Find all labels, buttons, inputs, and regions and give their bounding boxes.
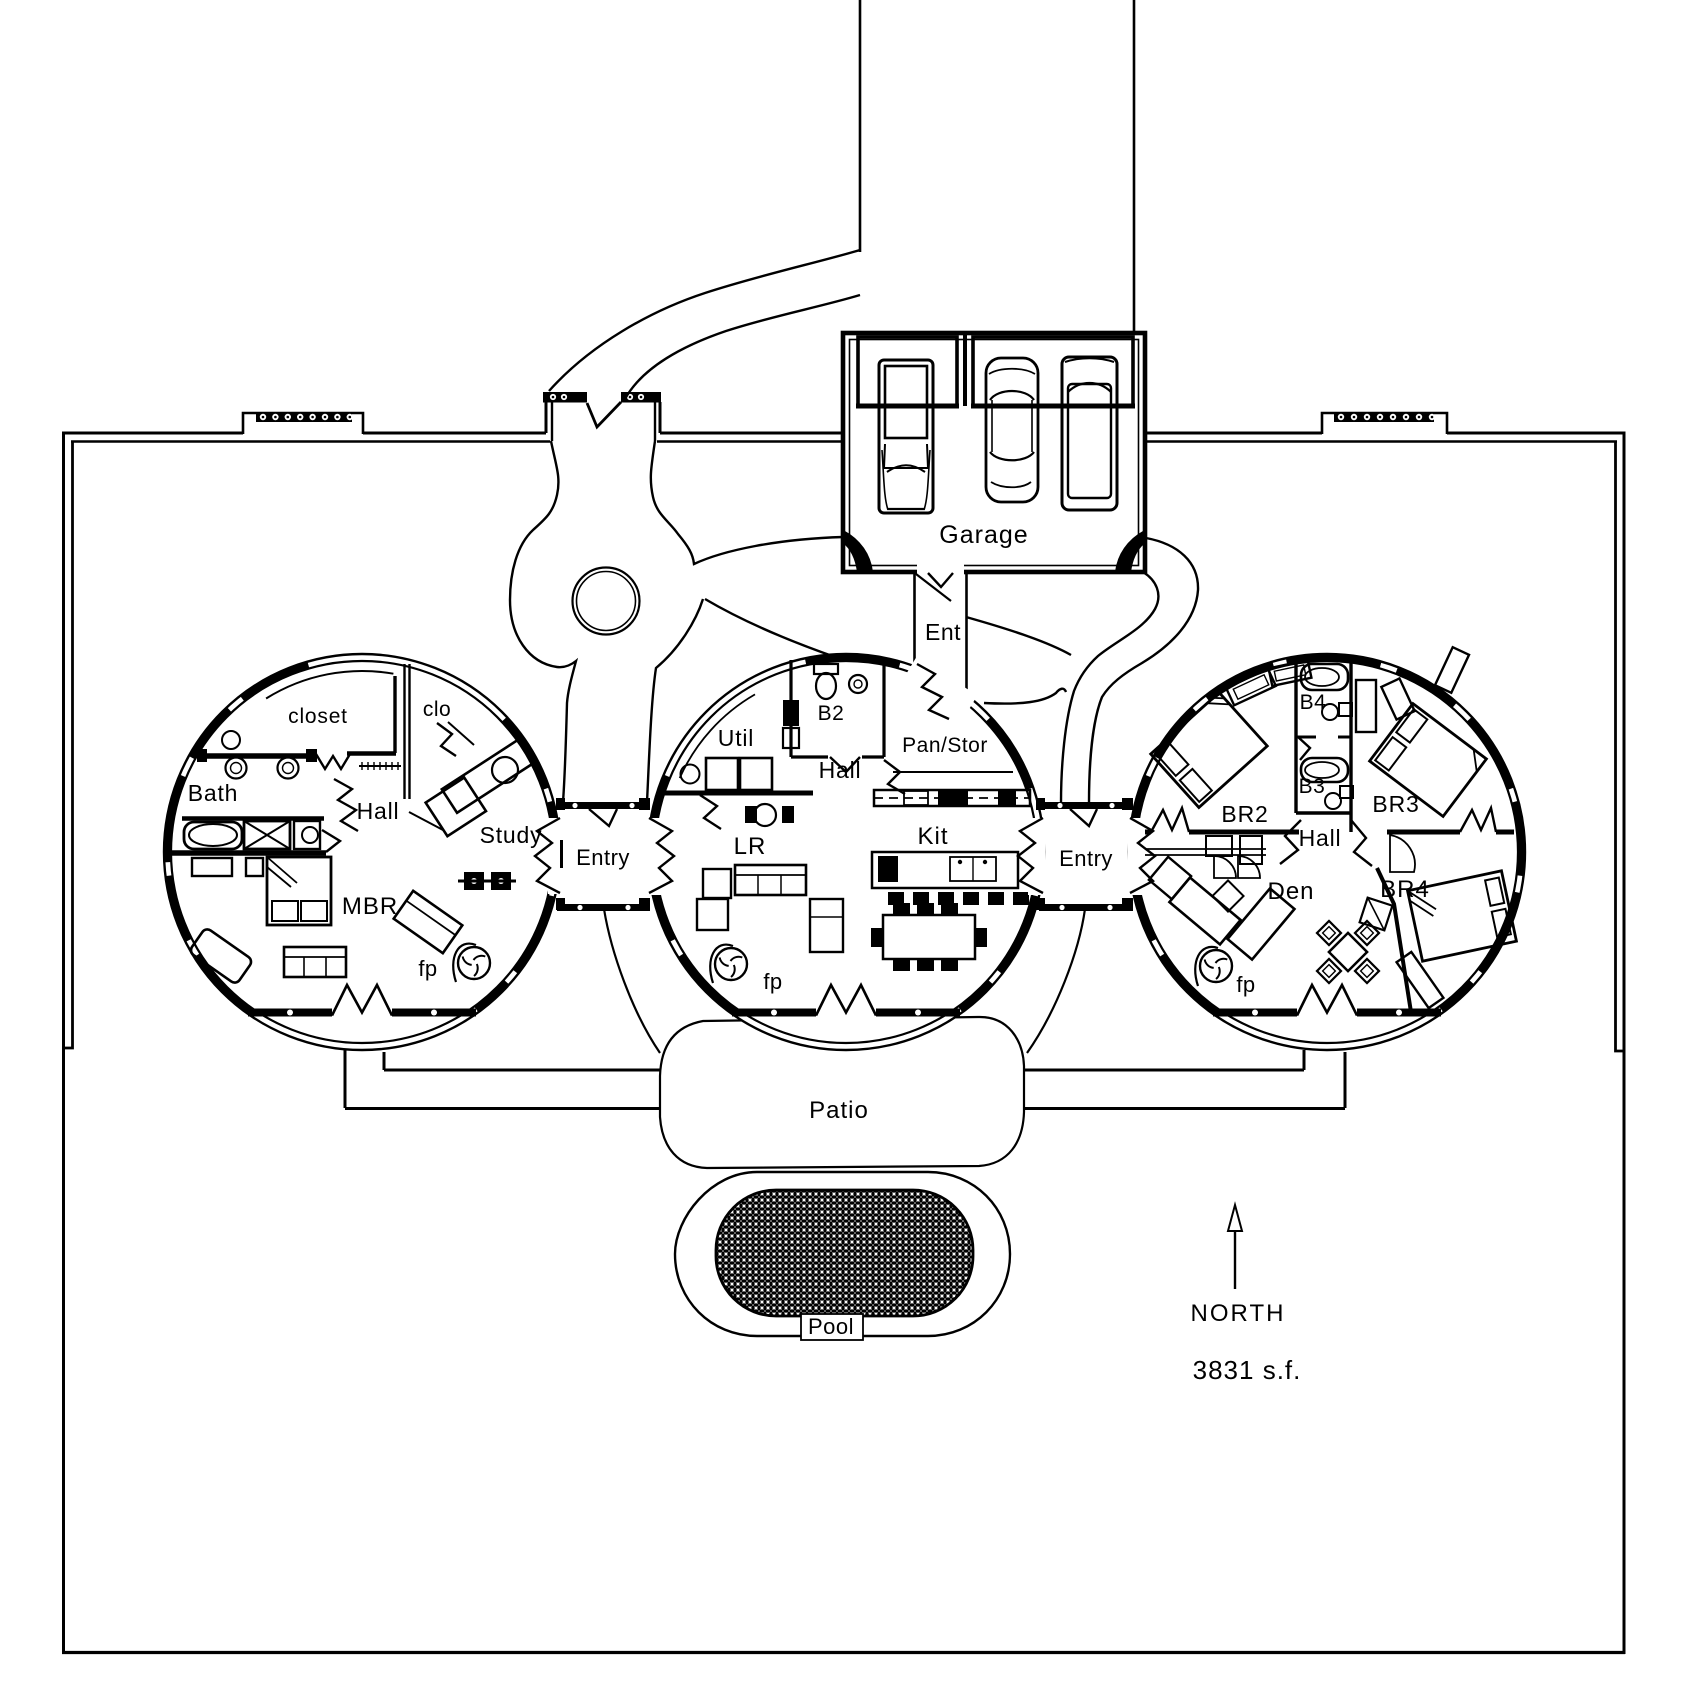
svg-text:Bath: Bath <box>188 780 239 806</box>
svg-text:B4: B4 <box>1300 691 1327 714</box>
svg-text:fp: fp <box>418 956 437 981</box>
svg-text:MBR: MBR <box>342 893 398 920</box>
svg-text:Entry: Entry <box>1059 846 1113 871</box>
svg-text:Entry: Entry <box>576 845 630 870</box>
svg-text:B3: B3 <box>1299 775 1326 798</box>
svg-text:BR2: BR2 <box>1221 801 1268 827</box>
svg-text:Util: Util <box>718 725 754 751</box>
svg-text:Hall: Hall <box>357 798 400 824</box>
svg-text:Study: Study <box>480 822 543 848</box>
svg-text:Hall: Hall <box>819 757 862 783</box>
svg-text:3831 s.f.: 3831 s.f. <box>1193 1355 1302 1385</box>
svg-text:Ent: Ent <box>925 619 961 645</box>
svg-text:LR: LR <box>734 833 767 860</box>
svg-text:Pan/Stor: Pan/Stor <box>902 734 988 757</box>
svg-text:Pool: Pool <box>808 1314 854 1339</box>
svg-text:B2: B2 <box>818 702 845 725</box>
svg-text:clo: clo <box>423 698 451 721</box>
svg-text:NORTH: NORTH <box>1191 1300 1286 1327</box>
svg-text:Garage: Garage <box>939 521 1028 549</box>
svg-text:BR4: BR4 <box>1380 876 1430 903</box>
svg-text:Kit: Kit <box>917 823 948 850</box>
svg-text:BR3: BR3 <box>1372 791 1419 817</box>
svg-text:Patio: Patio <box>809 1097 869 1124</box>
svg-text:Hall: Hall <box>1299 825 1342 851</box>
svg-text:Den: Den <box>1267 878 1314 905</box>
svg-text:fp: fp <box>1236 972 1255 997</box>
svg-text:closet: closet <box>288 705 348 728</box>
svg-text:fp: fp <box>763 969 782 994</box>
